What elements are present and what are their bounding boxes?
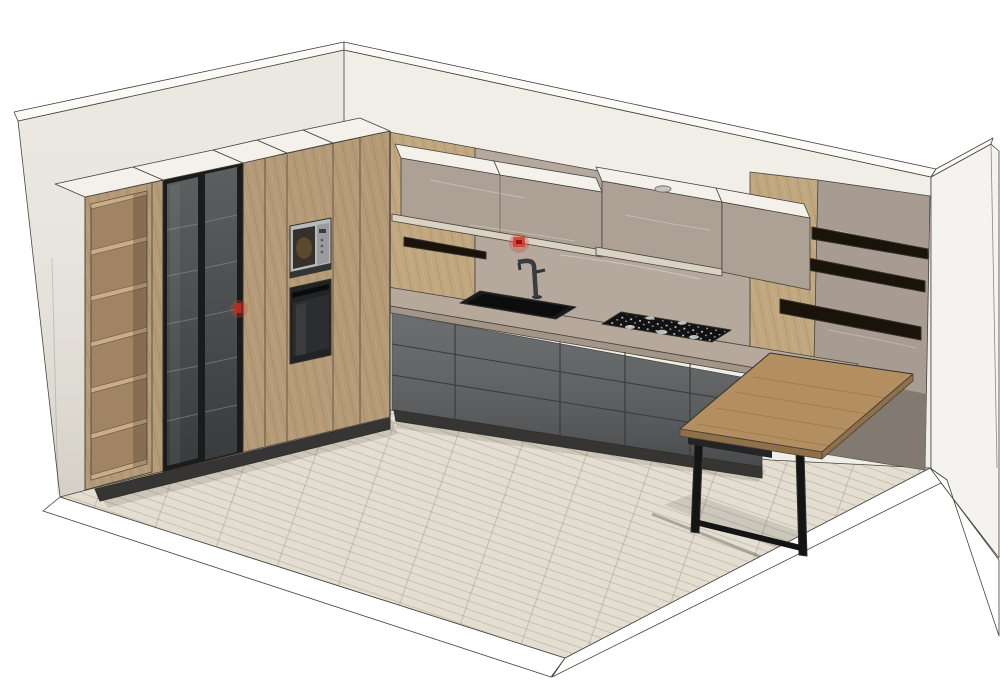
red-marker-socket[interactable] [509,233,529,253]
glass-reflection [170,184,180,465]
built-in-microwave[interactable] [290,218,331,278]
kitchen-3d-render [0,0,1000,682]
faucet-lever [536,270,545,272]
microwave-window-glow [296,237,312,259]
right-wall [931,144,999,558]
render-canvas [0,0,1000,682]
oven-glass-reflection [296,303,306,356]
glass-pantry-cabinet[interactable] [163,163,243,472]
appliance-column [290,218,331,364]
hood-vent-hole [655,186,671,192]
built-in-oven[interactable] [290,279,331,364]
microwave-display [319,229,326,233]
socket-detail [516,240,522,244]
red-marker-glass-cabinet[interactable] [230,300,248,318]
open-shelf-unit[interactable] [85,182,152,490]
shelf-unit-inner-shadow [133,191,147,468]
